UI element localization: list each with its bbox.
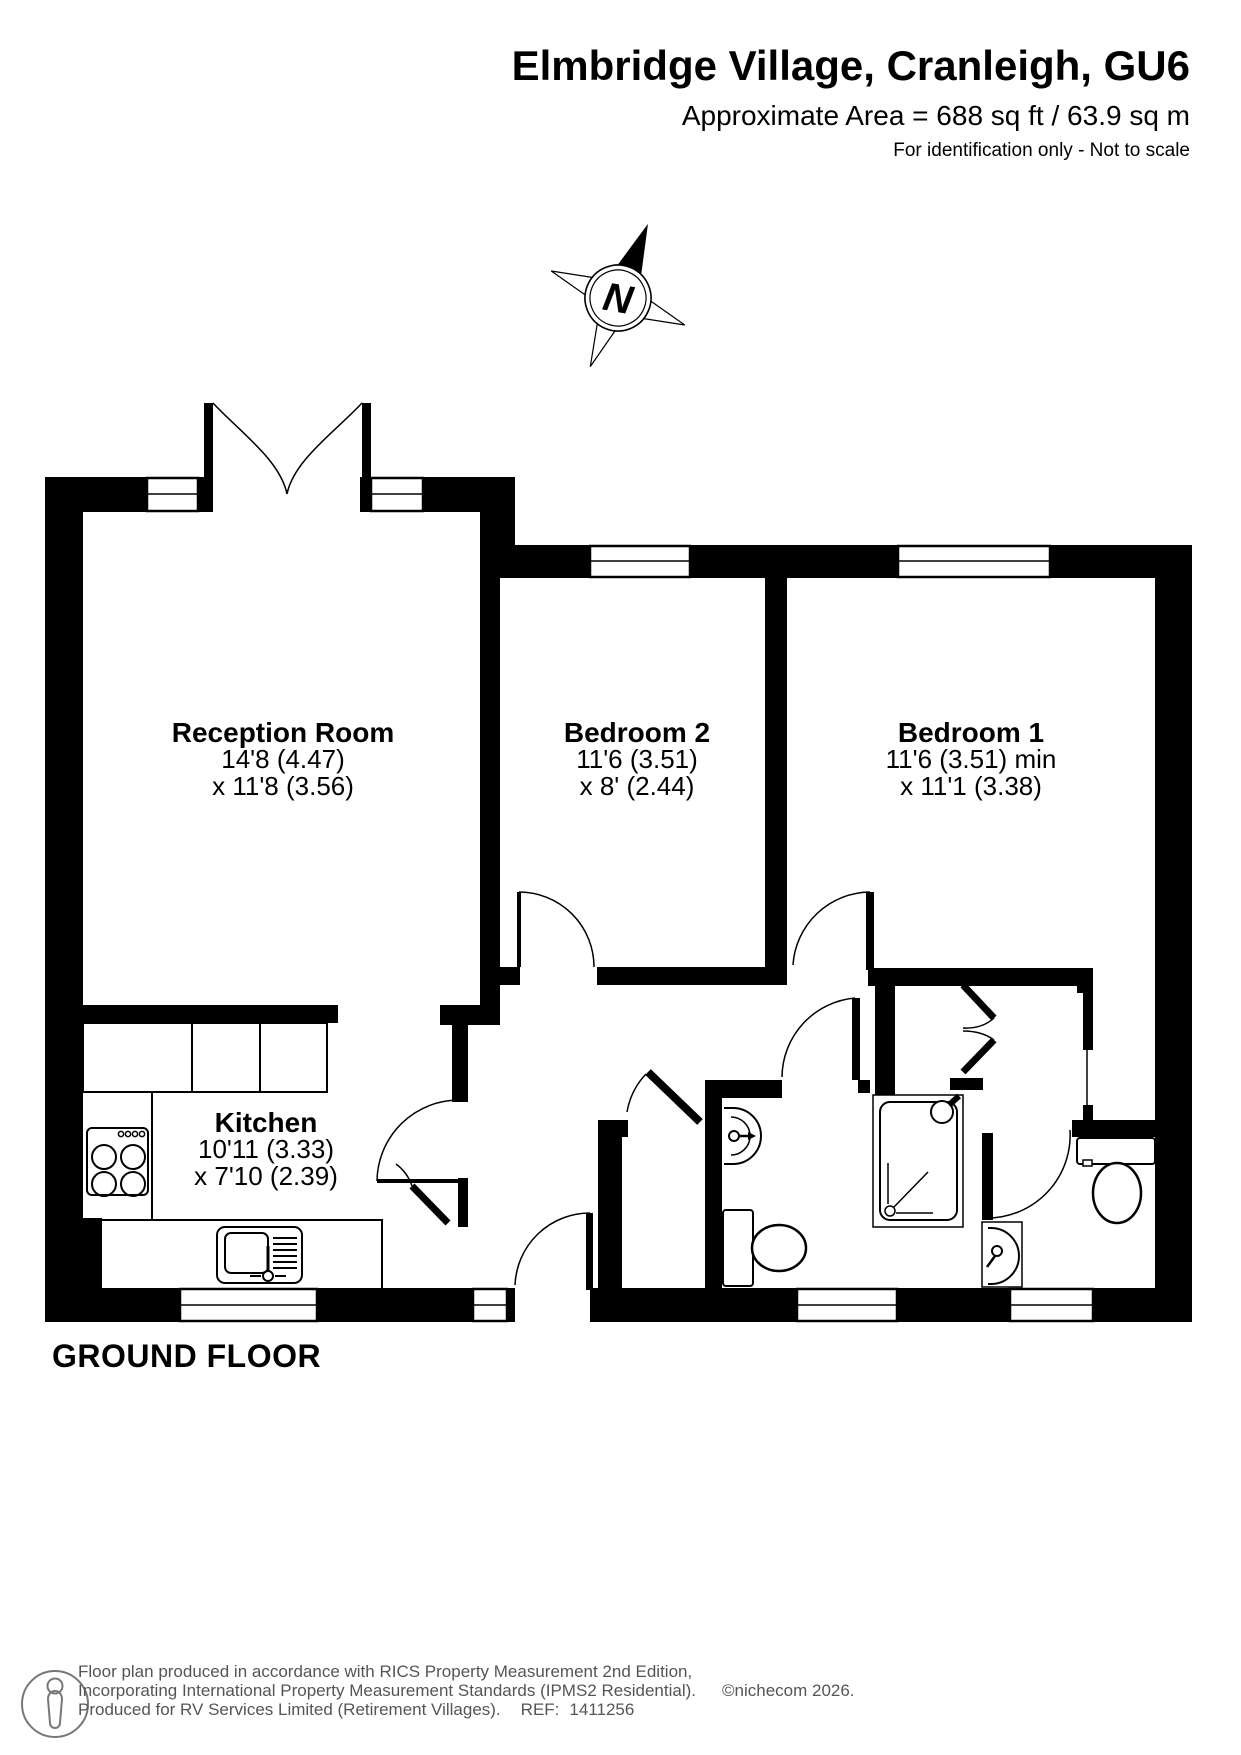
room-label-bedroom2: Bedroom 2 11'6 (3.51) x 8' (2.44) <box>487 719 787 800</box>
wall-top-bedrooms <box>515 545 590 578</box>
wall-bed1-bottom <box>868 968 1077 986</box>
door-leaves <box>377 892 994 1290</box>
wall-bed1-corner <box>1077 968 1093 993</box>
wall-bed2-bottom <box>597 967 787 985</box>
footer-line3: Produced for RV Services Limited (Retire… <box>78 1700 855 1719</box>
shower-icon <box>873 1095 963 1227</box>
door-leaf-front <box>586 1213 593 1290</box>
room-label-bedroom1: Bedroom 1 11'6 (3.51) min x 11'1 (3.38) <box>821 719 1121 800</box>
window <box>371 478 423 511</box>
door-arc <box>793 892 870 965</box>
window <box>797 1289 897 1321</box>
door-arc <box>782 998 855 1077</box>
french-door-jamb <box>362 403 371 481</box>
window <box>1010 1289 1093 1321</box>
ref-label: REF: <box>521 1700 560 1719</box>
wall-hall-vertical <box>452 1025 468 1102</box>
french-door-jamb <box>204 403 213 481</box>
room-dim: 14'8 (4.47) <box>133 746 433 773</box>
wall-cupboard-left <box>598 1120 622 1288</box>
compass-icon: N <box>524 197 715 394</box>
sink-icon <box>217 1227 302 1283</box>
room-dim: 11'6 (3.51) <box>487 746 787 773</box>
door-leaf-bathroom <box>982 1133 993 1220</box>
door-leaf-cupboard <box>648 1072 700 1122</box>
room-dim: x 11'8 (3.56) <box>133 773 433 800</box>
room-name: Kitchen <box>116 1109 416 1136</box>
wall-bottom <box>897 1288 1010 1322</box>
footer-line1: Floor plan produced in accordance with R… <box>78 1662 855 1681</box>
door-leaf-hall <box>412 1186 448 1223</box>
basin-icon <box>982 1222 1022 1287</box>
area-subtitle: Approximate Area = 688 sq ft / 63.9 sq m <box>682 100 1190 132</box>
window <box>473 1289 507 1321</box>
room-dim: 11'6 (3.51) min <box>821 746 1121 773</box>
door-arc <box>963 1031 994 1040</box>
floorplan-canvas: N <box>0 0 1241 1755</box>
footer-line3-text: Produced for RV Services Limited (Retire… <box>78 1700 501 1719</box>
footer-line2: Incorporating International Property Mea… <box>78 1681 855 1700</box>
room-name: Reception Room <box>133 719 433 746</box>
room-dim: x 11'1 (3.38) <box>821 773 1121 800</box>
basin-icon <box>724 1108 761 1164</box>
wall-cupboard-stub <box>598 1120 628 1137</box>
wall-entrance-jamb <box>458 1178 468 1227</box>
page-title: Elmbridge Village, Cranleigh, GU6 <box>512 42 1190 90</box>
wall-bottom <box>1093 1288 1192 1322</box>
wall-bottom <box>317 1288 473 1322</box>
ref-value: 1411256 <box>569 1700 634 1719</box>
french-door-arc <box>287 403 362 494</box>
wall-shower-left <box>705 1080 722 1288</box>
door-leaf-airing-cupboard <box>963 985 994 1018</box>
wall-bottom <box>590 1288 797 1322</box>
door-arc <box>515 1213 590 1285</box>
door-leaf-shower <box>852 998 860 1080</box>
door-arc <box>988 1130 1070 1218</box>
window <box>147 478 198 511</box>
wall-shower-top <box>705 1080 782 1098</box>
room-label-kitchen: Kitchen 10'11 (3.33) x 7'10 (2.39) <box>116 1109 416 1190</box>
wall-top <box>198 477 213 512</box>
footer-line2-text: Incorporating International Property Mea… <box>78 1681 696 1700</box>
wall-bed2-jamb <box>497 967 520 985</box>
wall-wardrobe-segment <box>1083 993 1093 1050</box>
door-arc <box>963 1018 994 1028</box>
door-leaf-airing-cupboard <box>963 1040 994 1072</box>
wall-bathroom-top <box>1072 1120 1155 1137</box>
wall-top <box>360 477 371 512</box>
window <box>898 546 1050 577</box>
room-dim: 10'11 (3.33) <box>116 1136 416 1163</box>
window <box>180 1289 317 1321</box>
room-dim: x 8' (2.44) <box>487 773 787 800</box>
wall-lobby-stub <box>950 1078 983 1090</box>
toilet-icon <box>1077 1138 1155 1223</box>
footer: Floor plan produced in accordance with R… <box>78 1662 855 1719</box>
door-arc <box>519 892 594 967</box>
room-name: Bedroom 1 <box>821 719 1121 746</box>
wall-hall-stub <box>440 1005 497 1025</box>
footer-logo <box>0 0 120 1755</box>
wall-right <box>1155 545 1192 1322</box>
room-dim: x 7'10 (2.39) <box>116 1163 416 1190</box>
french-door-arc <box>213 403 287 494</box>
wall-top-bedrooms <box>690 545 898 578</box>
room-name: Bedroom 2 <box>487 719 787 746</box>
wall-lobby <box>875 982 895 1095</box>
toilet-icon <box>723 1210 806 1286</box>
nichecom-copyright: ©nichecom 2026. <box>722 1681 855 1700</box>
door-arc <box>627 1074 646 1112</box>
wall-shower-jamb <box>858 1080 870 1093</box>
room-label-reception: Reception Room 14'8 (4.47) x 11'8 (3.56) <box>133 719 433 800</box>
window <box>590 546 690 577</box>
scale-note: For identification only - Not to scale <box>893 140 1190 162</box>
